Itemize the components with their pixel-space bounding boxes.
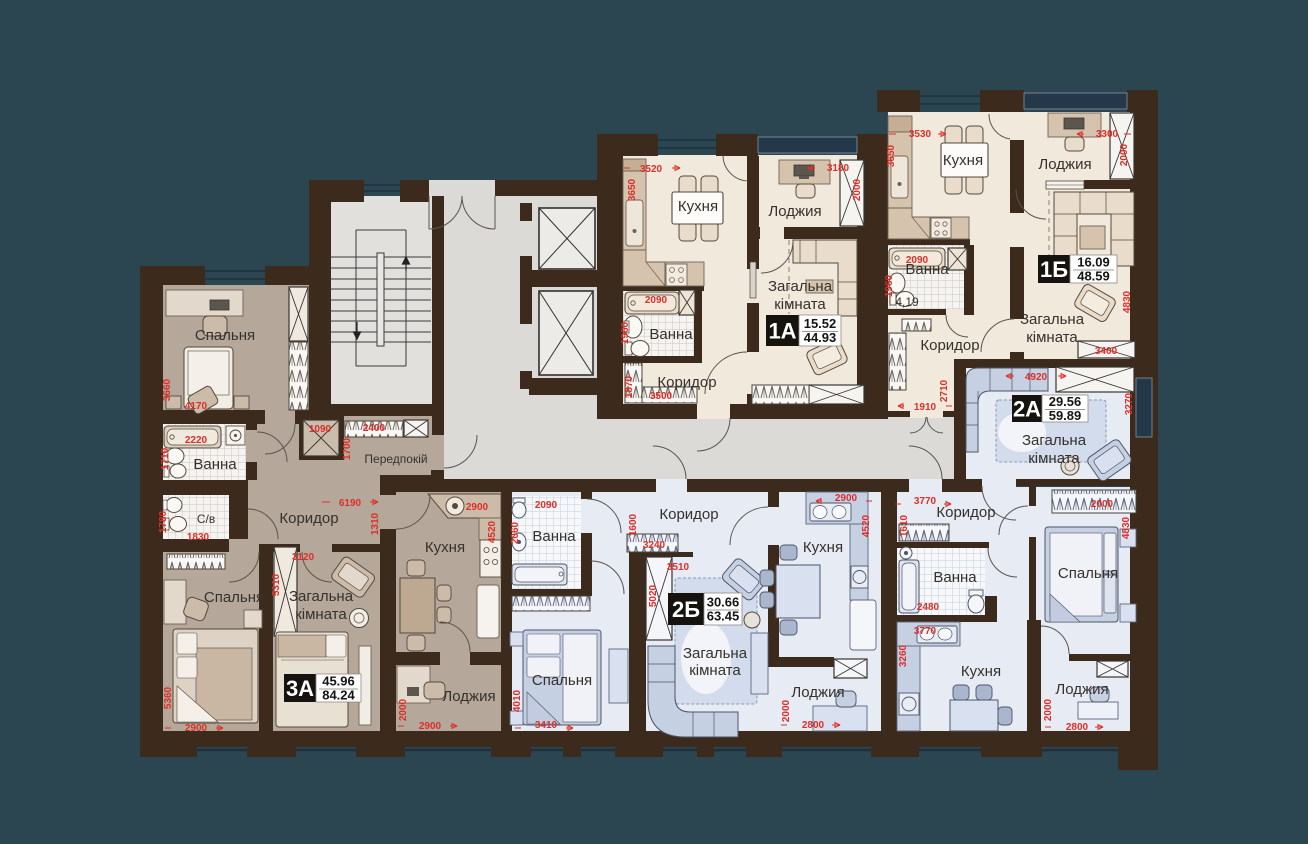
svg-text:3770: 3770	[914, 496, 937, 507]
svg-text:3400: 3400	[1095, 346, 1118, 357]
svg-text:С/в: С/в	[197, 512, 215, 526]
svg-text:Передпокій: Передпокій	[364, 452, 427, 466]
svg-text:Коридор: Коридор	[657, 374, 716, 391]
svg-text:2090: 2090	[906, 255, 929, 266]
svg-text:2000: 2000	[781, 699, 792, 722]
svg-text:2000: 2000	[852, 178, 863, 201]
svg-text:3660: 3660	[162, 378, 173, 401]
svg-text:63.45: 63.45	[707, 609, 740, 624]
svg-text:Спальня: Спальня	[532, 672, 592, 689]
svg-text:2Б: 2Б	[672, 597, 700, 622]
svg-text:2900: 2900	[835, 493, 858, 504]
svg-text:Загальна: Загальна	[289, 588, 354, 605]
svg-text:2710: 2710	[939, 379, 950, 402]
svg-text:3260: 3260	[898, 644, 909, 667]
svg-text:30.66: 30.66	[707, 595, 740, 610]
svg-text:1830: 1830	[187, 532, 210, 543]
svg-text:1700: 1700	[342, 437, 353, 460]
svg-text:4,19: 4,19	[895, 295, 919, 309]
svg-text:Коридор: Коридор	[659, 506, 718, 523]
svg-text:48.59: 48.59	[1077, 269, 1110, 284]
svg-text:Коридор: Коридор	[279, 510, 338, 527]
svg-text:Лоджия: Лоджия	[768, 203, 821, 220]
svg-text:1910: 1910	[914, 402, 937, 413]
svg-text:3530: 3530	[909, 129, 932, 140]
svg-text:Кухня: Кухня	[678, 198, 718, 215]
svg-text:2800: 2800	[1066, 722, 1089, 733]
svg-text:3650: 3650	[886, 144, 897, 167]
svg-text:3410: 3410	[535, 720, 558, 731]
svg-text:Кухня: Кухня	[943, 152, 983, 169]
svg-text:4830: 4830	[1121, 516, 1132, 539]
svg-text:59.89: 59.89	[1049, 408, 1082, 423]
svg-text:2090: 2090	[535, 500, 558, 511]
svg-text:2900: 2900	[466, 502, 489, 513]
svg-text:3510: 3510	[667, 562, 690, 573]
svg-text:5360: 5360	[163, 686, 174, 709]
svg-text:1600: 1600	[628, 513, 639, 536]
svg-text:4010: 4010	[512, 689, 523, 712]
svg-text:3500: 3500	[650, 391, 673, 402]
svg-text:1310: 1310	[370, 512, 381, 535]
svg-text:3180: 3180	[827, 163, 850, 174]
svg-text:4520: 4520	[861, 514, 872, 537]
svg-text:Спальня: Спальня	[204, 589, 264, 606]
svg-text:Лоджия: Лоджия	[791, 684, 844, 701]
svg-text:4830: 4830	[1122, 290, 1133, 313]
svg-text:4170: 4170	[185, 401, 208, 412]
svg-text:2400: 2400	[363, 423, 386, 434]
svg-text:Спальня: Спальня	[1058, 565, 1118, 582]
svg-text:3А: 3А	[286, 676, 314, 701]
svg-text:Лоджия: Лоджия	[1055, 681, 1108, 698]
svg-text:Загальна: Загальна	[1022, 432, 1087, 449]
svg-text:3270: 3270	[1124, 392, 1135, 415]
svg-text:2000: 2000	[398, 698, 409, 721]
svg-text:2090: 2090	[645, 295, 668, 306]
svg-text:2000: 2000	[1091, 499, 1114, 510]
svg-text:2480: 2480	[917, 602, 940, 613]
svg-text:3240: 3240	[643, 540, 666, 551]
svg-text:45.96: 45.96	[322, 674, 355, 689]
svg-text:1960: 1960	[884, 274, 895, 297]
svg-text:3120: 3120	[292, 552, 315, 563]
svg-text:4920: 4920	[1025, 372, 1048, 383]
svg-text:1А: 1А	[768, 319, 796, 344]
svg-text:2220: 2220	[185, 435, 208, 446]
svg-text:Кухня: Кухня	[961, 663, 1001, 680]
svg-text:1Б: 1Б	[1040, 257, 1068, 282]
svg-text:кімната: кімната	[1026, 329, 1078, 346]
svg-text:1870: 1870	[624, 375, 635, 398]
svg-text:1710: 1710	[160, 447, 171, 470]
svg-text:5020: 5020	[648, 584, 659, 607]
svg-text:Загальна: Загальна	[1020, 311, 1085, 328]
svg-text:Ванна: Ванна	[649, 326, 693, 343]
svg-text:Кухня: Кухня	[425, 539, 465, 556]
svg-text:Коридор: Коридор	[936, 504, 995, 521]
svg-text:44.93: 44.93	[804, 330, 837, 345]
svg-text:1960: 1960	[620, 321, 631, 344]
svg-text:3770: 3770	[914, 626, 937, 637]
svg-text:2060: 2060	[510, 521, 521, 544]
svg-text:1610: 1610	[899, 514, 910, 537]
svg-text:1780: 1780	[158, 510, 169, 533]
svg-text:Ванна: Ванна	[933, 569, 977, 586]
svg-text:2800: 2800	[802, 720, 825, 731]
svg-text:кімната: кімната	[1028, 450, 1080, 467]
svg-text:Загальна: Загальна	[683, 645, 748, 662]
svg-text:6190: 6190	[339, 498, 362, 509]
svg-text:3520: 3520	[640, 164, 663, 175]
svg-text:2000: 2000	[1043, 698, 1054, 721]
svg-text:5310: 5310	[271, 573, 282, 596]
svg-text:Лоджия: Лоджия	[442, 688, 495, 705]
svg-text:2000: 2000	[1119, 143, 1130, 166]
svg-text:кімната: кімната	[689, 662, 741, 679]
svg-text:4520: 4520	[487, 520, 498, 543]
svg-text:Лоджия: Лоджия	[1038, 156, 1091, 173]
svg-text:2900: 2900	[185, 723, 208, 734]
svg-text:кімната: кімната	[774, 296, 826, 313]
svg-text:Загальна: Загальна	[768, 278, 833, 295]
svg-text:Ванна: Ванна	[193, 456, 237, 473]
svg-text:Ванна: Ванна	[532, 528, 576, 545]
svg-text:2900: 2900	[419, 721, 442, 732]
svg-text:3300: 3300	[1096, 129, 1119, 140]
svg-text:16.09: 16.09	[1077, 255, 1110, 270]
svg-text:Спальня: Спальня	[195, 327, 255, 344]
svg-text:29.56: 29.56	[1049, 394, 1082, 409]
svg-text:1090: 1090	[309, 424, 332, 435]
svg-text:3650: 3650	[627, 178, 638, 201]
svg-text:Кухня: Кухня	[803, 539, 843, 556]
svg-text:84.24: 84.24	[322, 688, 355, 703]
svg-text:Коридор: Коридор	[920, 337, 979, 354]
svg-text:2А: 2А	[1013, 397, 1041, 422]
svg-text:15.52: 15.52	[804, 316, 837, 331]
svg-text:кімната: кімната	[295, 606, 347, 623]
